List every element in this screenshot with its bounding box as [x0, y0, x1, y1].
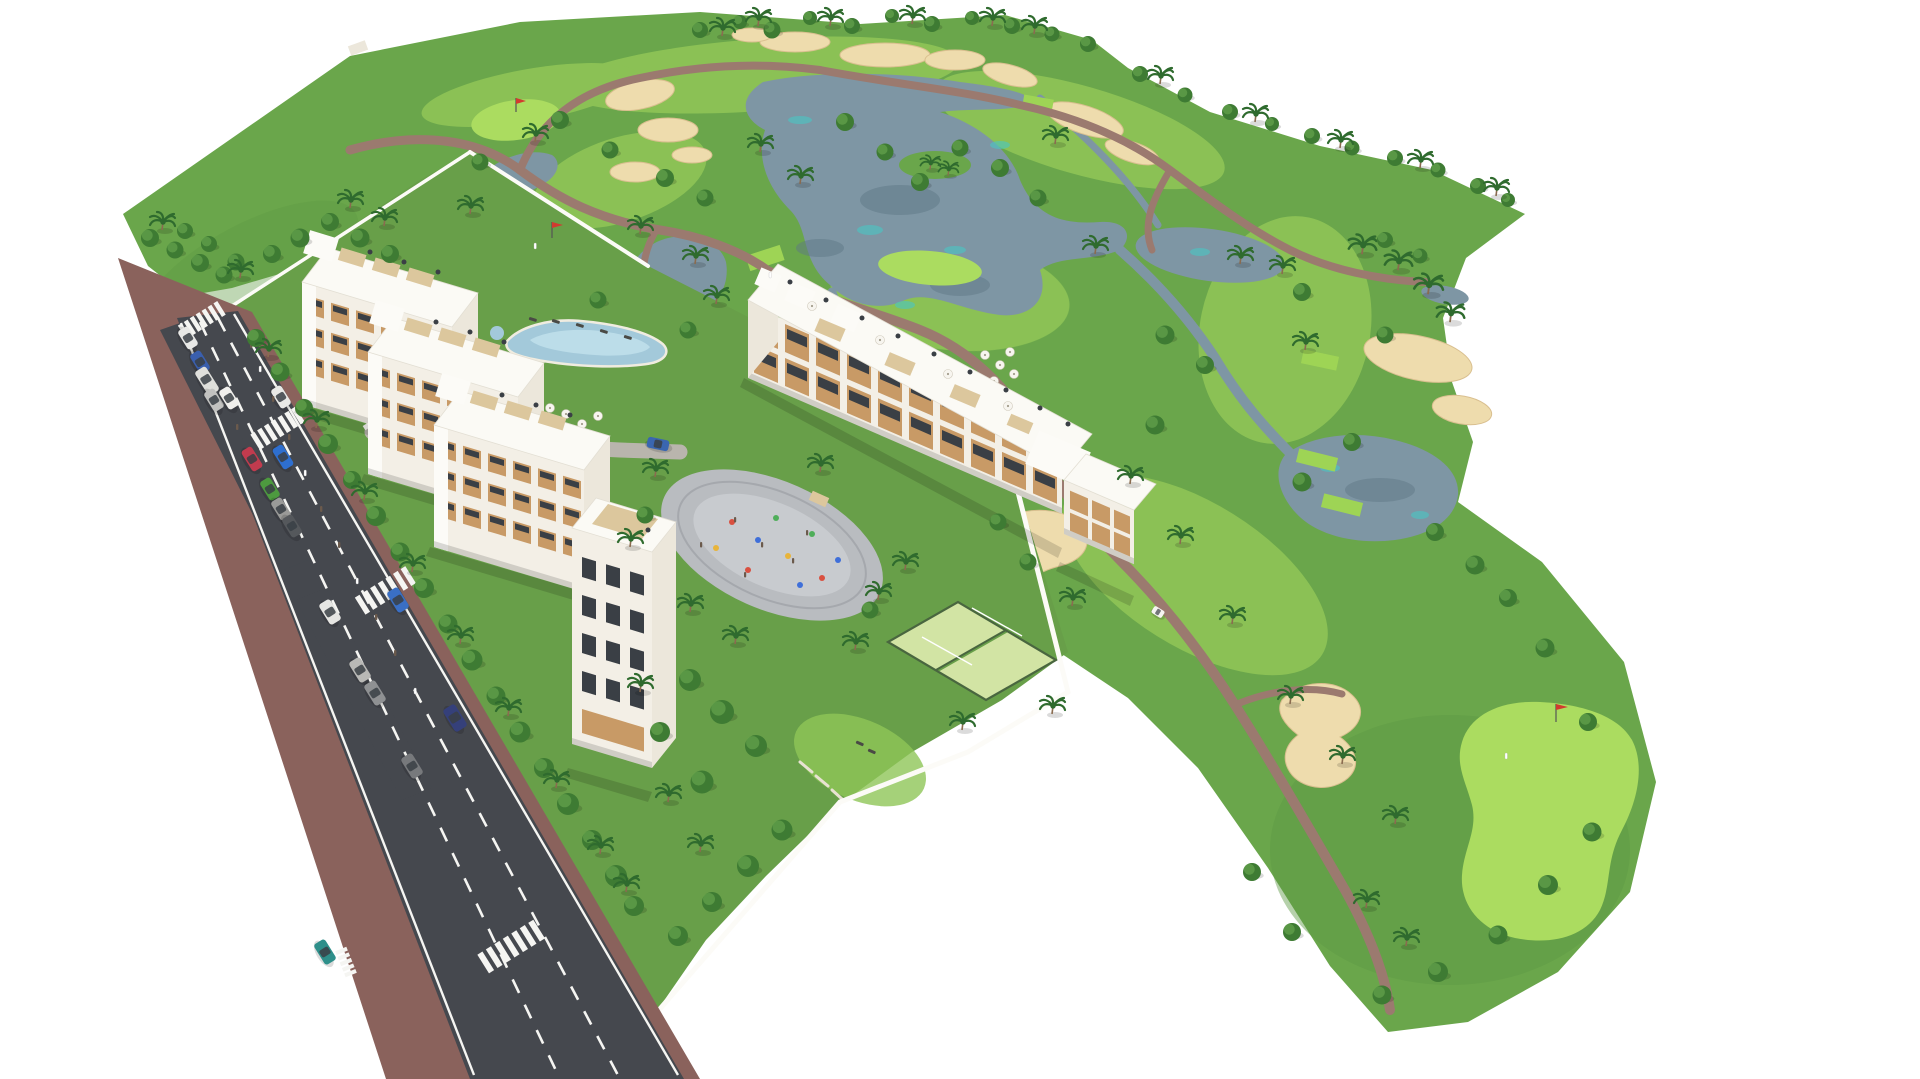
- stair-core: [302, 282, 316, 408]
- render-canvas: Aerial masterplan rendering of a white a…: [0, 0, 1920, 1079]
- stair-core: [434, 425, 448, 551]
- golfer: [1505, 753, 1507, 759]
- golfer: [769, 272, 771, 278]
- stair-core: [368, 352, 382, 478]
- kids-pool: [490, 326, 504, 340]
- golfer: [534, 243, 536, 249]
